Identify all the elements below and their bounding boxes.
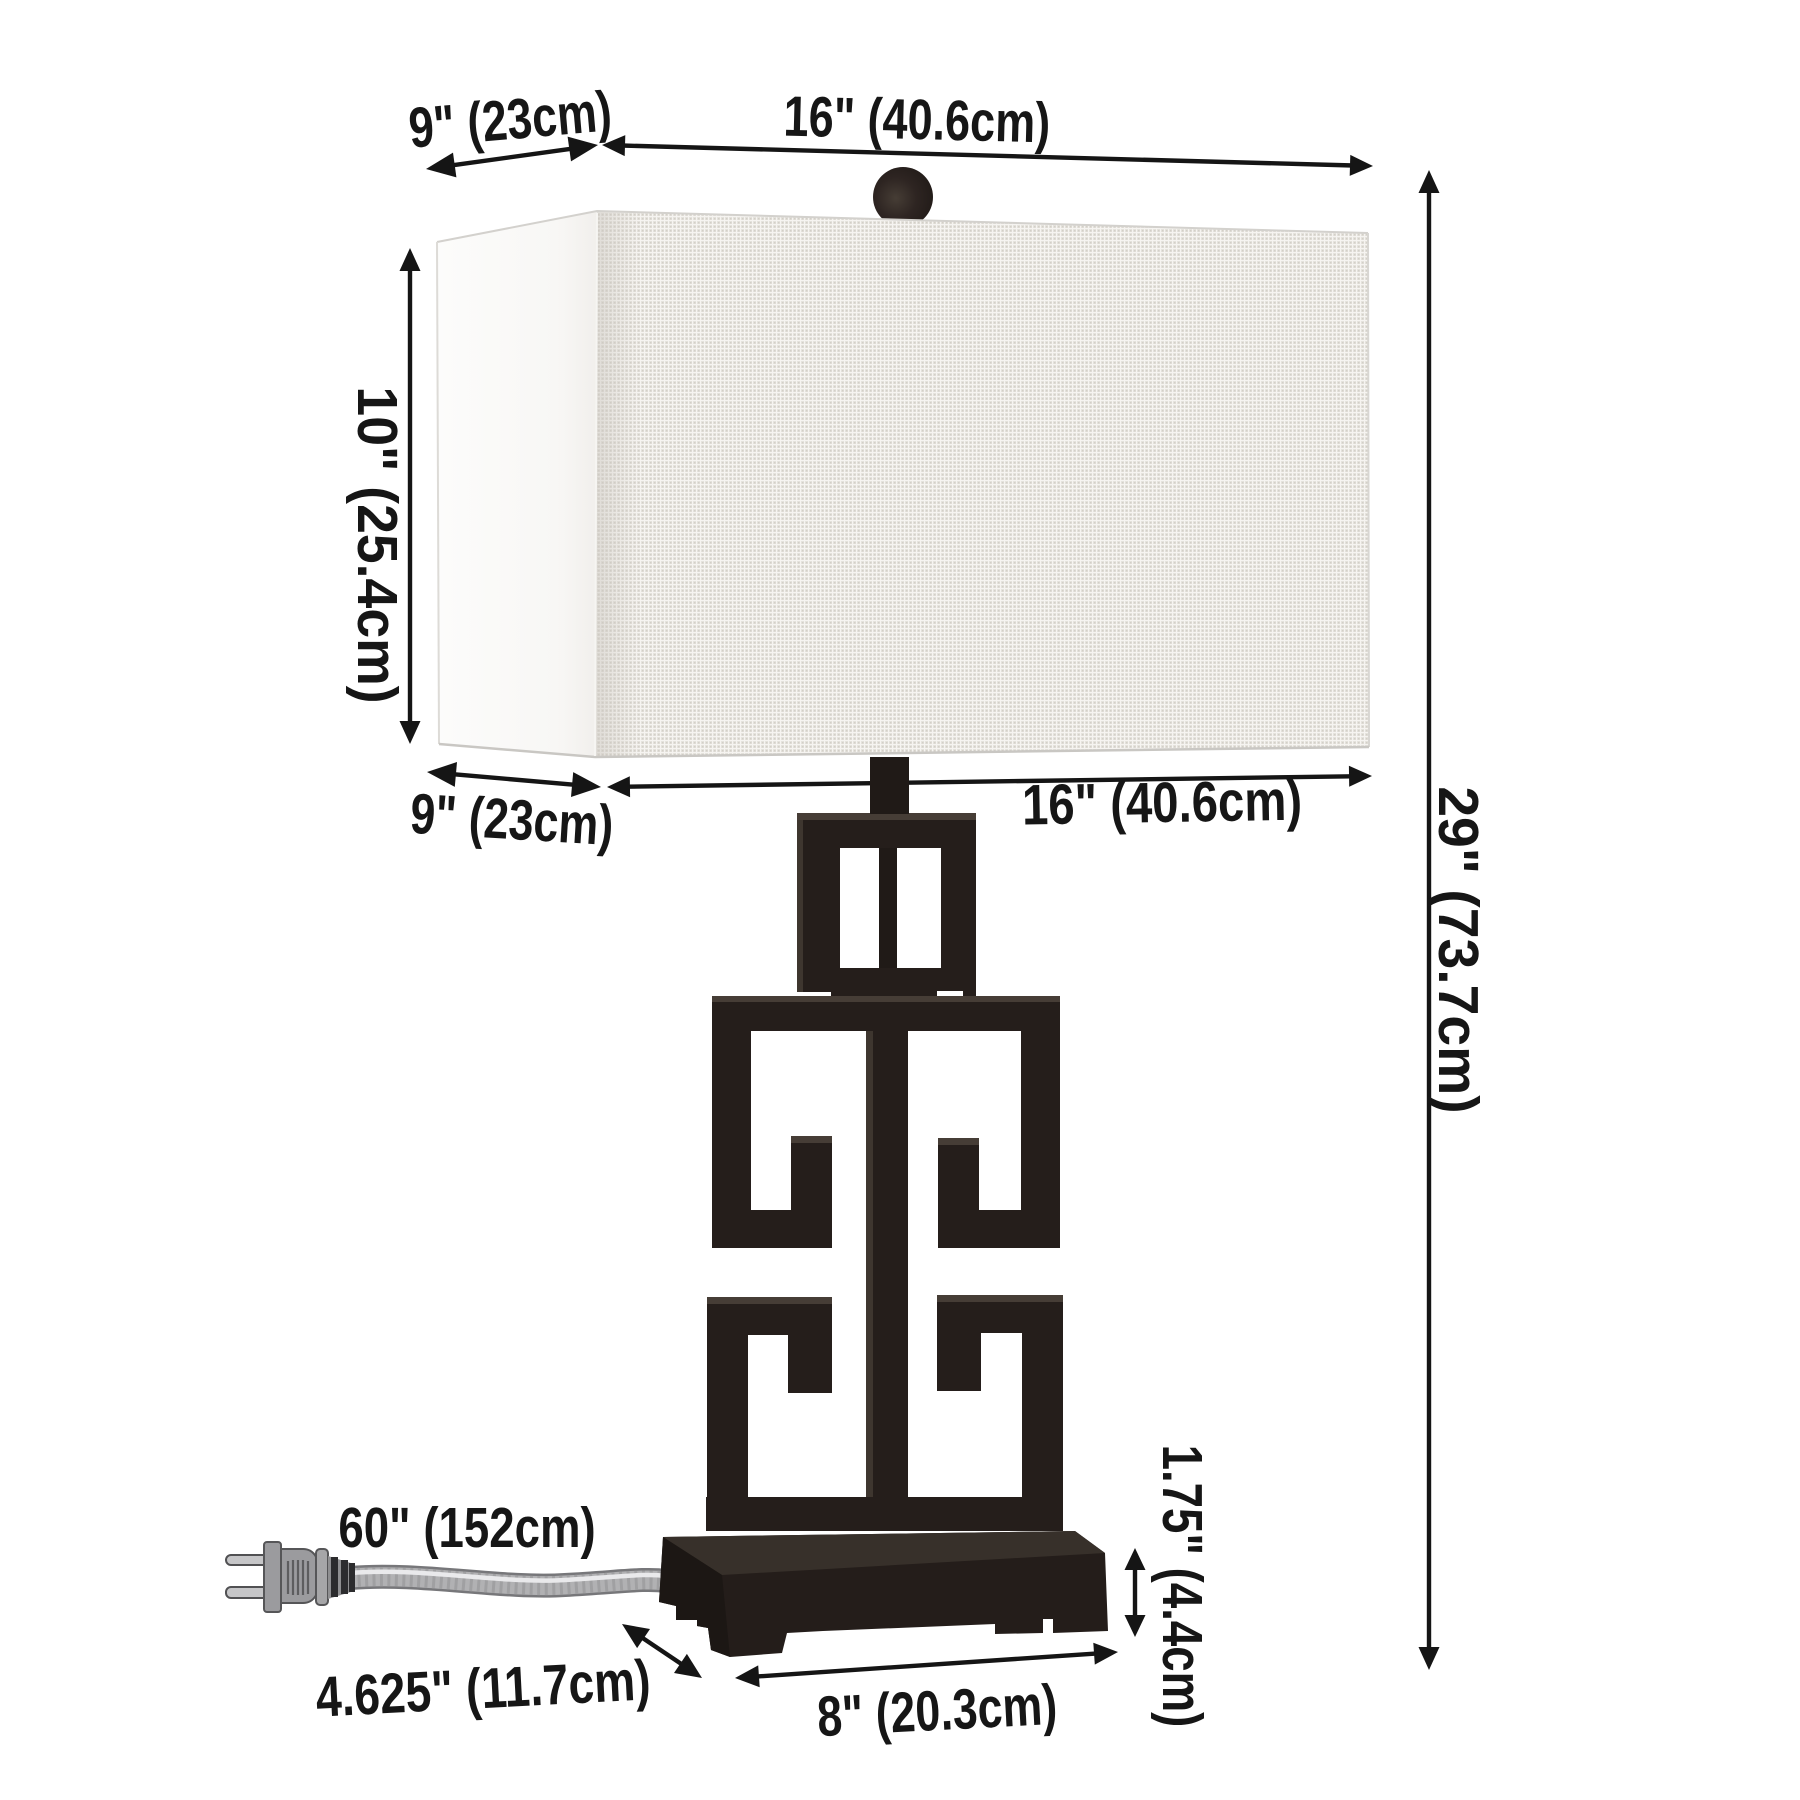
svg-text:4.625" (11.7cm): 4.625" (11.7cm) [314, 1648, 652, 1729]
svg-text:16" (40.6cm): 16" (40.6cm) [783, 84, 1051, 154]
svg-text:8" (20.3cm): 8" (20.3cm) [816, 1673, 1059, 1749]
svg-text:1.75" (4.4cm): 1.75" (4.4cm) [1151, 1445, 1215, 1728]
svg-text:60" (152cm): 60" (152cm) [338, 1495, 595, 1559]
svg-text:9" (23cm): 9" (23cm) [409, 782, 616, 858]
svg-text:10" (25.4cm): 10" (25.4cm) [346, 386, 410, 703]
svg-text:16" (40.6cm): 16" (40.6cm) [1021, 770, 1302, 838]
svg-text:29" (73.7cm): 29" (73.7cm) [1427, 786, 1491, 1113]
